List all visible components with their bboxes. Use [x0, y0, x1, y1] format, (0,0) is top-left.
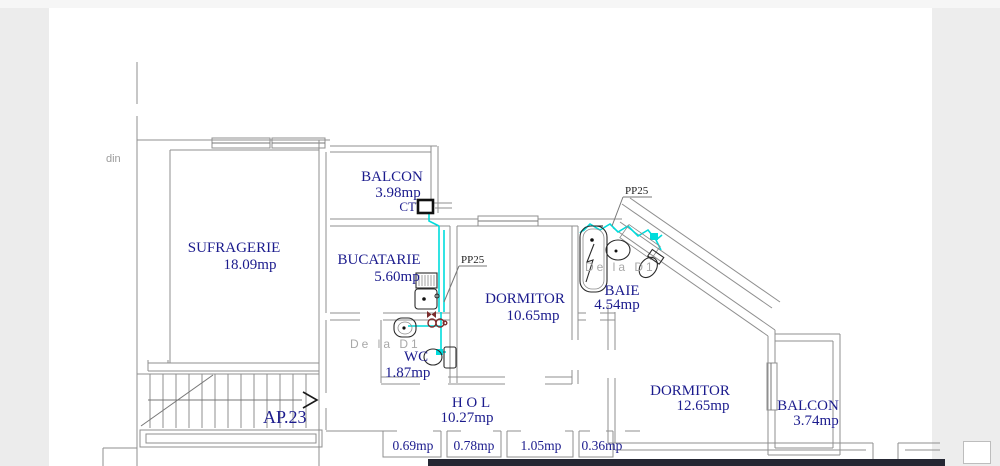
room-area-dormitor1: 10.65mp — [507, 308, 560, 324]
room-area-bucatarie: 5.60mp — [374, 269, 419, 285]
room-area-dormitor2: 12.65mp — [677, 398, 730, 414]
boiler-ct-label: CT — [399, 199, 416, 214]
clipped-left-text: din — [106, 153, 121, 165]
room-label-bucatarie: BUCATARIE — [338, 252, 421, 268]
floorplan-drawing: din SUFRAGERIE 18.09mp BALCON 3.98mp CT … — [0, 0, 1000, 466]
room-area-balcon-right: 3.74mp — [793, 413, 838, 429]
closet-area-4: 0.36mp — [582, 438, 623, 453]
bottom-right-wall-notch — [963, 441, 991, 464]
room-labels: din SUFRAGERIE 18.09mp BALCON 3.98mp CT … — [106, 153, 839, 453]
boiler-ct-symbol — [418, 200, 433, 213]
pipe-label-pp25-kitchen: PP25 — [461, 254, 485, 266]
room-label-dormitor1: DORMITOR — [485, 291, 565, 307]
room-area-baie: 4.54mp — [594, 297, 639, 313]
bottom-dark-strip — [428, 459, 945, 466]
note-from-d1-bath: De la D1 — [585, 260, 656, 274]
bathtub — [580, 226, 607, 292]
room-label-balcon-top: BALCON — [361, 169, 423, 185]
apartment-number-label: AP.23 — [263, 407, 307, 427]
room-area-sufragerie: 18.09mp — [224, 257, 277, 273]
closet-area-3: 1.05mp — [521, 438, 562, 453]
pipe-label-pp25-bath: PP25 — [625, 185, 649, 197]
room-label-hol: H O L — [452, 395, 490, 411]
wc-basin — [394, 318, 416, 337]
stair-arrow-icon — [303, 392, 317, 408]
room-area-hol: 10.27mp — [441, 410, 494, 426]
stair-handrail — [140, 430, 322, 447]
room-area-wc: 1.87mp — [385, 365, 430, 381]
room-label-balcon-right: BALCON — [777, 398, 839, 414]
closet-area-1: 0.69mp — [393, 438, 434, 453]
room-label-dormitor2: DORMITOR — [650, 383, 730, 399]
room-label-wc: WC — [404, 349, 428, 365]
room-label-sufragerie: SUFRAGERIE — [188, 240, 281, 256]
floorplan-viewer: din SUFRAGERIE 18.09mp BALCON 3.98mp CT … — [0, 0, 1000, 466]
closet-area-2: 0.78mp — [454, 438, 495, 453]
